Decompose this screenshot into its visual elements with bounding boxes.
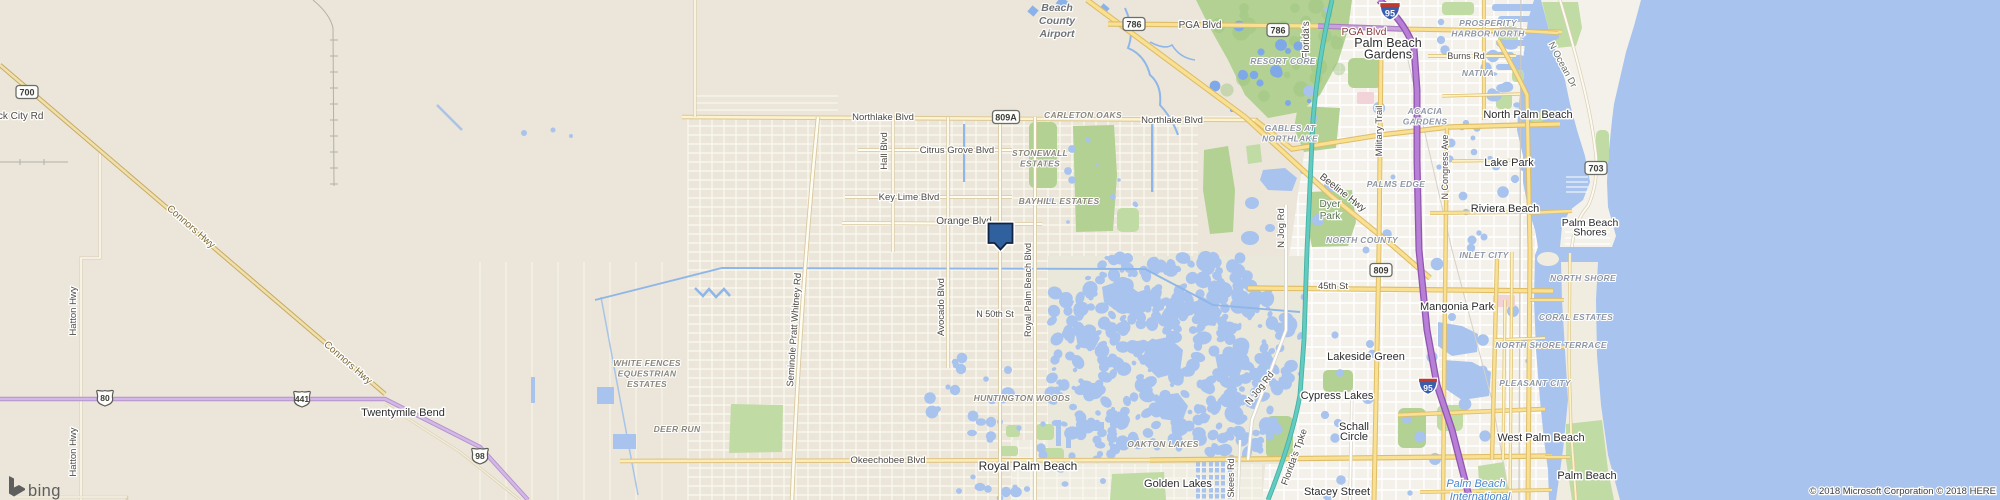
svg-text:Palm Beach: Palm Beach bbox=[1557, 470, 1616, 482]
svg-text:BAYHILL ESTATES: BAYHILL ESTATES bbox=[1019, 196, 1100, 206]
svg-text:ACACIA: ACACIA bbox=[1407, 106, 1443, 116]
svg-text:Gardens: Gardens bbox=[1364, 48, 1412, 62]
svg-text:80: 80 bbox=[100, 393, 110, 403]
svg-text:Park: Park bbox=[1320, 211, 1342, 222]
svg-text:Golden Lakes: Golden Lakes bbox=[1144, 478, 1212, 490]
svg-text:Key Lime Blvd: Key Lime Blvd bbox=[879, 192, 940, 203]
svg-text:Hall Blvd: Hall Blvd bbox=[879, 132, 890, 170]
svg-text:Royal Palm Beach Blvd: Royal Palm Beach Blvd bbox=[1023, 243, 1033, 337]
svg-text:Cypress Lakes: Cypress Lakes bbox=[1301, 390, 1374, 402]
svg-text:Orange Blvd: Orange Blvd bbox=[936, 216, 992, 227]
svg-text:HUNTINGTON WOODS: HUNTINGTON WOODS bbox=[974, 393, 1071, 403]
svg-text:703: 703 bbox=[1588, 164, 1603, 174]
svg-text:EQUESTRIAN: EQUESTRIAN bbox=[618, 369, 677, 379]
svg-text:Hatton Hwy: Hatton Hwy bbox=[68, 427, 79, 476]
svg-text:DEER RUN: DEER RUN bbox=[654, 424, 701, 434]
svg-text:ESTATES: ESTATES bbox=[627, 379, 667, 389]
svg-text:Northlake Blvd: Northlake Blvd bbox=[1141, 115, 1203, 126]
svg-text:Twentymile Bend: Twentymile Bend bbox=[361, 407, 445, 419]
svg-text:Citrus Grove Blvd: Citrus Grove Blvd bbox=[920, 145, 994, 156]
svg-text:809: 809 bbox=[1373, 266, 1388, 276]
svg-text:N Jog Rd: N Jog Rd bbox=[1276, 208, 1287, 248]
svg-text:RESORT CORE: RESORT CORE bbox=[1250, 56, 1316, 66]
svg-text:441: 441 bbox=[295, 394, 309, 404]
svg-text:786: 786 bbox=[1270, 26, 1285, 36]
svg-text:700: 700 bbox=[19, 88, 34, 98]
svg-text:GABLES AT: GABLES AT bbox=[1265, 123, 1316, 133]
svg-text:International: International bbox=[1450, 491, 1511, 500]
svg-text:786: 786 bbox=[1126, 20, 1141, 30]
svg-text:Airport: Airport bbox=[1039, 28, 1076, 40]
svg-text:Muck City Rd: Muck City Rd bbox=[0, 111, 43, 122]
svg-text:NORTH COUNTY: NORTH COUNTY bbox=[1326, 235, 1399, 245]
svg-text:INLET CITY: INLET CITY bbox=[1459, 250, 1509, 260]
svg-text:809A: 809A bbox=[995, 113, 1017, 123]
svg-text:98: 98 bbox=[475, 451, 485, 461]
svg-text:Riviera Beach: Riviera Beach bbox=[1471, 203, 1539, 215]
svg-text:NORTHLAKE: NORTHLAKE bbox=[1262, 134, 1318, 144]
svg-text:GARDENS: GARDENS bbox=[1403, 117, 1448, 127]
svg-text:WHITE FENCES: WHITE FENCES bbox=[613, 358, 681, 368]
svg-text:Burns Rd: Burns Rd bbox=[1447, 51, 1485, 61]
svg-text:© 2018 Microsoft Corporation ©: © 2018 Microsoft Corporation © 2018 HERE bbox=[1809, 486, 1996, 497]
svg-text:N Congress Ave: N Congress Ave bbox=[1440, 135, 1450, 200]
svg-text:HARBOR NORTH: HARBOR NORTH bbox=[1451, 29, 1525, 39]
svg-text:North Palm Beach: North Palm Beach bbox=[1483, 109, 1572, 121]
svg-text:CORAL ESTATES: CORAL ESTATES bbox=[1539, 312, 1613, 322]
svg-text:West Palm Beach: West Palm Beach bbox=[1497, 432, 1584, 444]
svg-text:Mangonia Park: Mangonia Park bbox=[1420, 301, 1494, 313]
svg-text:Palm Beach: Palm Beach bbox=[1446, 478, 1505, 490]
svg-text:Dyer: Dyer bbox=[1319, 199, 1341, 210]
svg-text:Hatton Hwy: Hatton Hwy bbox=[68, 286, 79, 335]
svg-text:Skees Rd: Skees Rd bbox=[1226, 458, 1236, 497]
svg-text:Royal Palm Beach: Royal Palm Beach bbox=[979, 459, 1078, 473]
svg-text:Lake Park: Lake Park bbox=[1484, 157, 1534, 169]
svg-text:STONEWALL: STONEWALL bbox=[1012, 148, 1068, 158]
svg-text:PLEASANT CITY: PLEASANT CITY bbox=[1499, 378, 1571, 388]
svg-text:Shores: Shores bbox=[1573, 227, 1606, 239]
svg-text:95: 95 bbox=[1423, 383, 1433, 393]
svg-text:Beach: Beach bbox=[1041, 2, 1073, 14]
svg-text:Avocado Blvd: Avocado Blvd bbox=[936, 278, 947, 336]
svg-text:NORTH SHORE TERRACE: NORTH SHORE TERRACE bbox=[1495, 340, 1607, 350]
svg-text:Northlake Blvd: Northlake Blvd bbox=[852, 112, 914, 123]
svg-text:ESTATES: ESTATES bbox=[1020, 159, 1060, 169]
svg-text:County: County bbox=[1039, 15, 1076, 27]
svg-text:Stacey Street: Stacey Street bbox=[1304, 486, 1370, 498]
svg-text:Military Trail: Military Trail bbox=[1374, 106, 1385, 157]
svg-text:PGA Blvd: PGA Blvd bbox=[1179, 20, 1222, 31]
svg-text:95: 95 bbox=[1385, 9, 1395, 19]
svg-text:Circle: Circle bbox=[1340, 431, 1368, 443]
svg-text:45th St: 45th St bbox=[1318, 281, 1348, 292]
svg-text:OAKTON LAKES: OAKTON LAKES bbox=[1127, 439, 1198, 449]
svg-text:Okeechobee Blvd: Okeechobee Blvd bbox=[851, 455, 926, 466]
svg-text:NORTH SHORE: NORTH SHORE bbox=[1550, 273, 1616, 283]
svg-text:PALMS EDGE: PALMS EDGE bbox=[1367, 179, 1426, 189]
svg-text:Lakeside Green: Lakeside Green bbox=[1327, 351, 1405, 363]
svg-text:N 50th St: N 50th St bbox=[976, 309, 1014, 319]
svg-text:bing: bing bbox=[28, 482, 61, 500]
svg-text:PROSPERITY: PROSPERITY bbox=[1459, 18, 1518, 28]
svg-text:CARLETON OAKS: CARLETON OAKS bbox=[1044, 110, 1122, 120]
svg-text:NATIVA: NATIVA bbox=[1462, 68, 1494, 78]
svg-text:Florida's: Florida's bbox=[1301, 21, 1312, 58]
